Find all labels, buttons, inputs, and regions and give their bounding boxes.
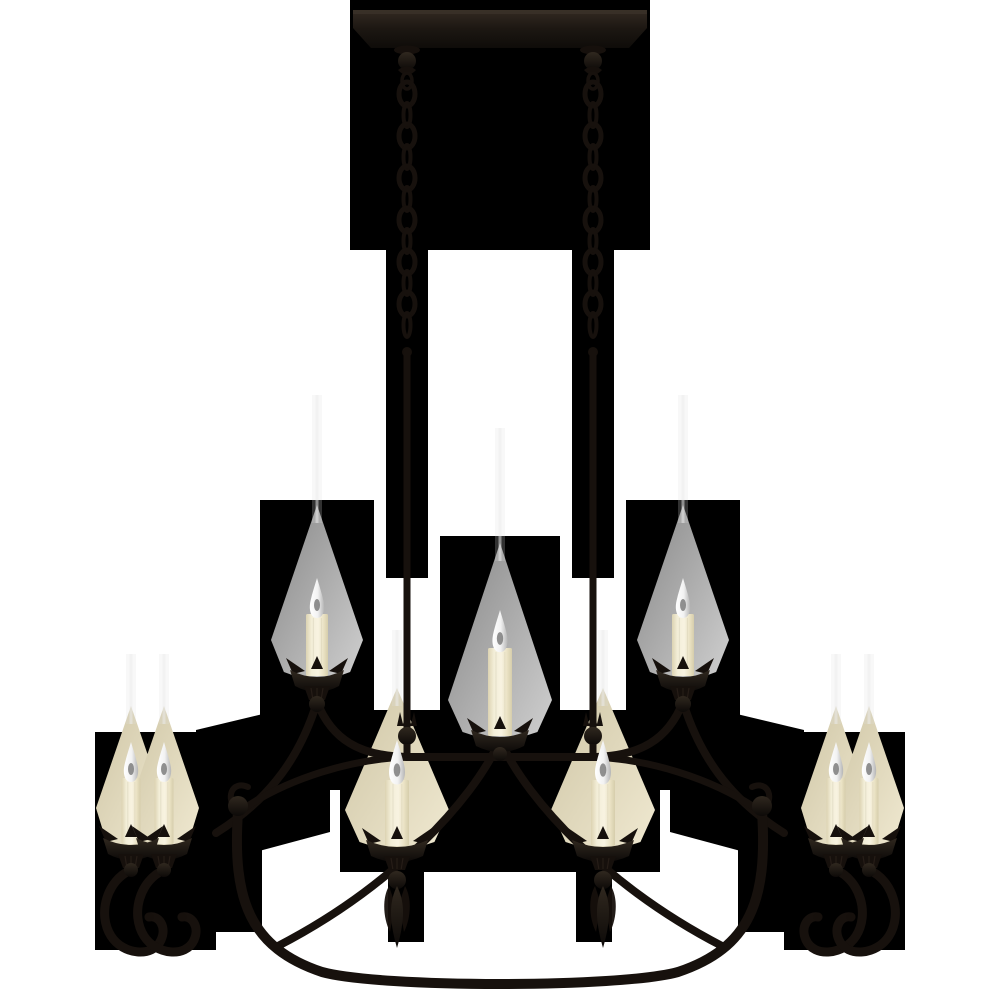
cup-ball-finial (124, 863, 138, 877)
glow-streak-core (130, 654, 133, 724)
glow-streak-core (499, 428, 502, 561)
flame-core (866, 763, 872, 775)
glow-streak-core (868, 654, 871, 724)
glow-streak-core (835, 654, 838, 724)
cup-ball-finial (157, 863, 171, 877)
scroll-ball-finial (752, 796, 772, 816)
canopy-highlight (353, 10, 647, 14)
glow-streak-core (163, 654, 166, 724)
flame-core (833, 763, 839, 775)
flame-core (161, 763, 167, 775)
cup-ball-finial (675, 696, 691, 712)
scroll-tip-ball (814, 913, 823, 922)
flame-core (600, 763, 607, 776)
cup-ball-finial (309, 696, 325, 712)
scroll-ball-finial (228, 796, 248, 816)
glow-streak-core (396, 630, 399, 706)
scroll-tip-ball (847, 913, 856, 922)
flame-core (314, 599, 320, 611)
glow-streak-core (602, 630, 605, 706)
cup-ball-finial (862, 863, 876, 877)
cup-ball-finial (493, 747, 507, 761)
flame-core (497, 632, 503, 645)
flame-core (128, 763, 134, 775)
cup-ball-finial (829, 863, 843, 877)
glow-streak-core (316, 395, 319, 523)
flame-core (680, 599, 686, 611)
chandelier-product-photo (0, 0, 1000, 1000)
scroll-tip-ball (178, 913, 187, 922)
ceiling-canopy (353, 10, 647, 48)
glow-streak-core (682, 395, 685, 523)
chandelier-illustration (0, 0, 1000, 1000)
flame-core (394, 763, 401, 776)
scroll-tip-ball (145, 913, 154, 922)
